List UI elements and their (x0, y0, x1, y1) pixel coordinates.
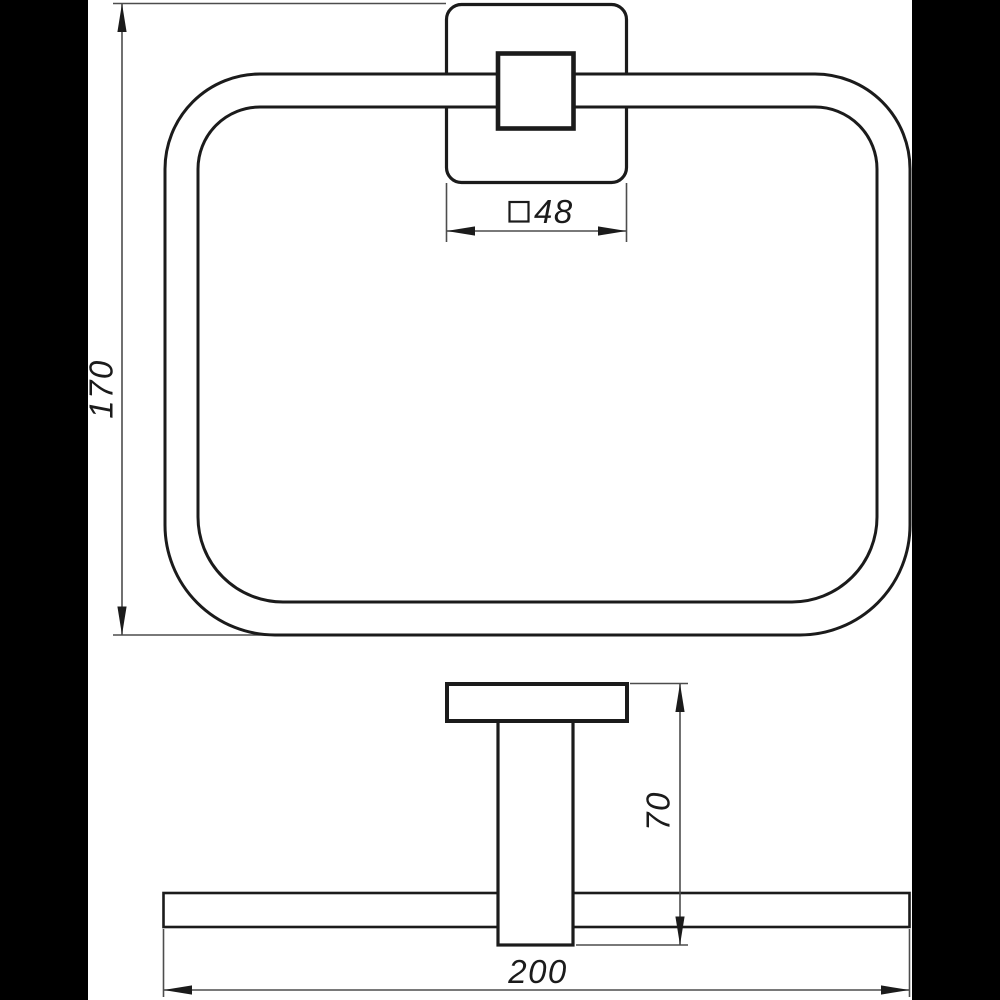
technical-drawing-svg: 48 170 70 200 (0, 0, 1000, 1000)
square-symbol-icon (510, 202, 529, 222)
side-wall-plate (447, 684, 627, 721)
side-view: 70 200 (164, 684, 910, 998)
front-view: 48 170 (83, 4, 911, 636)
side-mount-stem (498, 721, 573, 945)
dim-width-label: 200 (507, 953, 568, 990)
mount-connector-square (498, 54, 574, 129)
drawing-canvas: 48 170 70 200 (0, 0, 1000, 1000)
pillarbox-right (912, 0, 1000, 1000)
dim-plate-size-label: 48 (534, 193, 574, 230)
pillarbox-left (0, 0, 88, 1000)
dim-depth-label: 70 (640, 791, 677, 831)
dim-plate-size: 48 (447, 183, 627, 242)
dim-height-label: 170 (83, 359, 120, 419)
